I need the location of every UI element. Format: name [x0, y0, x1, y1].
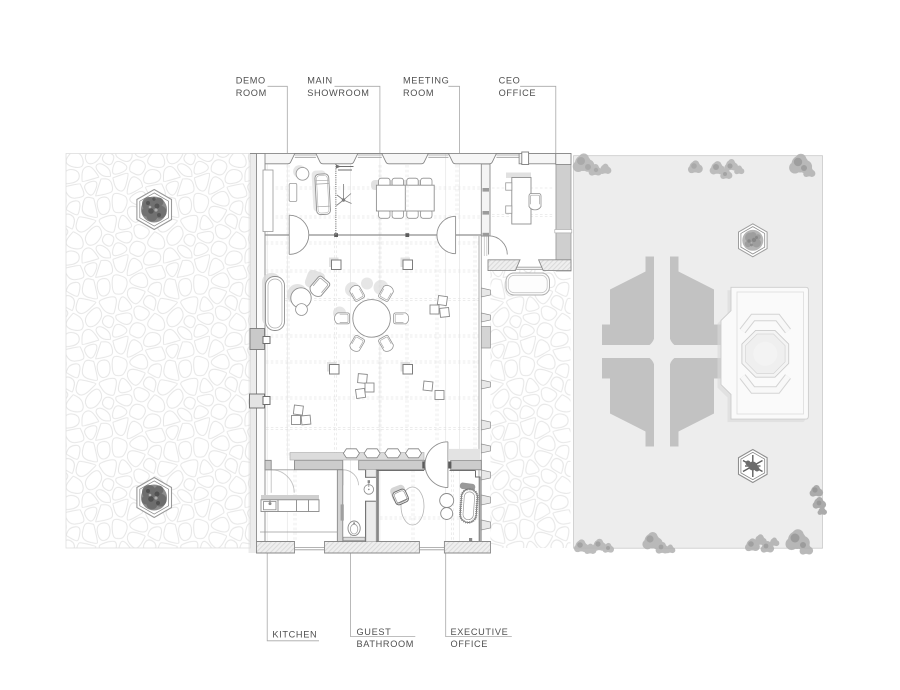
- svg-text:SHOWROOM: SHOWROOM: [307, 88, 369, 98]
- svg-text:BATHROOM: BATHROOM: [357, 639, 415, 649]
- svg-text:DEMO: DEMO: [236, 76, 266, 86]
- svg-text:OFFICE: OFFICE: [499, 88, 537, 98]
- svg-text:ROOM: ROOM: [403, 88, 434, 98]
- svg-text:EXECUTIVE: EXECUTIVE: [451, 627, 509, 637]
- svg-text:CEO: CEO: [499, 76, 521, 86]
- svg-text:ROOM: ROOM: [236, 88, 267, 98]
- svg-text:KITCHEN: KITCHEN: [272, 630, 317, 640]
- svg-text:OFFICE: OFFICE: [451, 639, 489, 649]
- svg-text:MAIN: MAIN: [307, 76, 333, 86]
- svg-text:MEETING: MEETING: [403, 76, 449, 86]
- svg-text:GUEST: GUEST: [357, 627, 392, 637]
